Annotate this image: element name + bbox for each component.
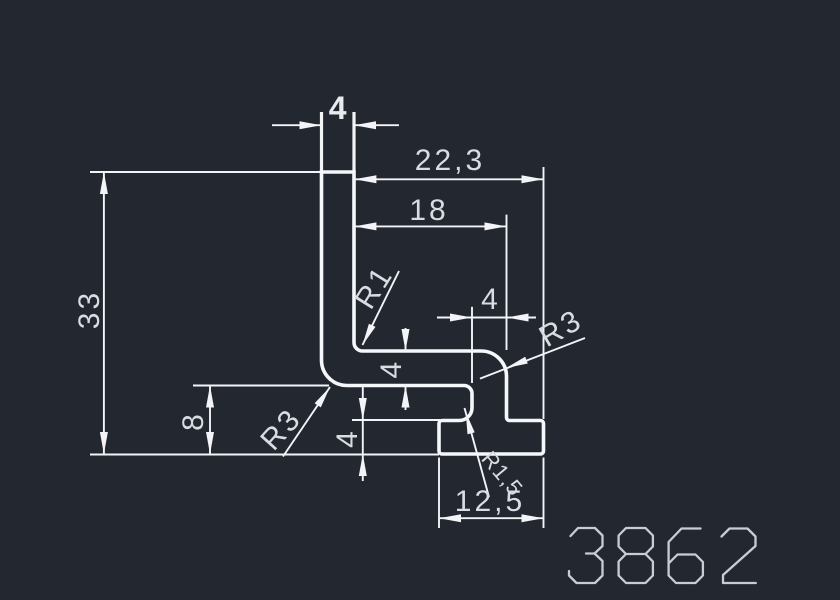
svg-text:4: 4 bbox=[375, 359, 408, 379]
svg-text:4: 4 bbox=[331, 428, 364, 448]
svg-text:33: 33 bbox=[73, 290, 106, 329]
svg-text:4: 4 bbox=[329, 90, 347, 126]
svg-text:8: 8 bbox=[177, 411, 210, 431]
svg-text:22,3: 22,3 bbox=[415, 144, 485, 177]
svg-text:4: 4 bbox=[481, 283, 501, 316]
svg-text:18: 18 bbox=[409, 194, 448, 227]
